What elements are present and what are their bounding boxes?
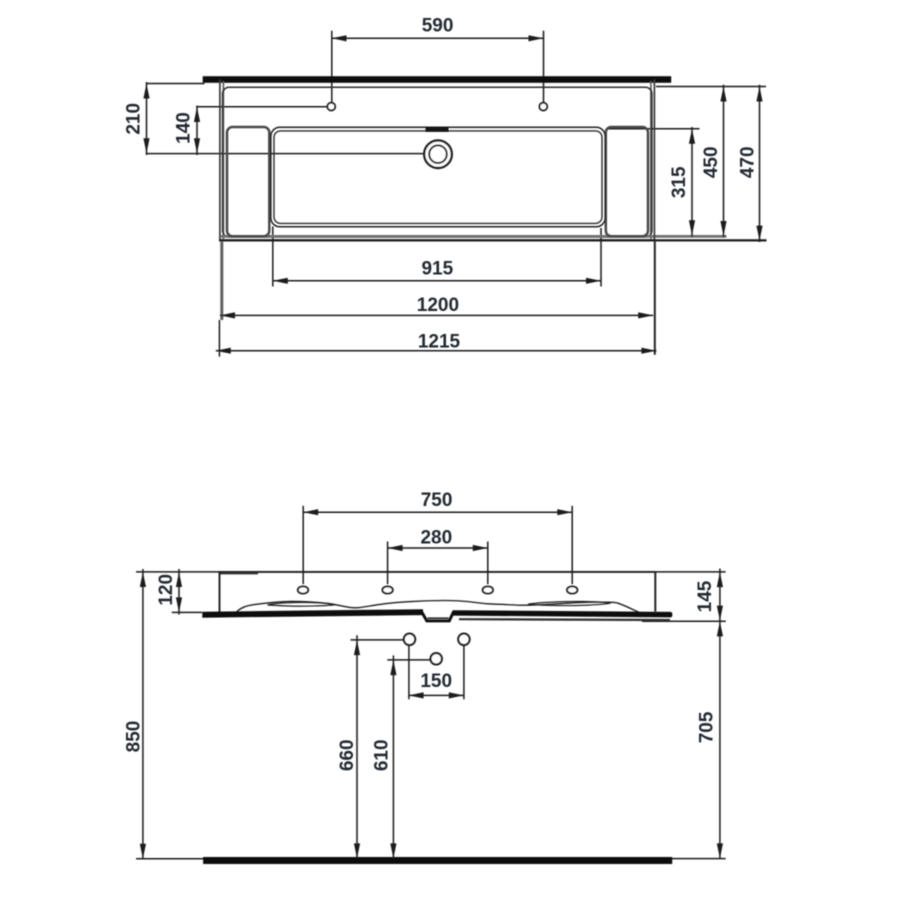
svg-text:150: 150 [420, 671, 452, 692]
svg-text:1215: 1215 [418, 331, 461, 352]
svg-text:315: 315 [669, 166, 690, 198]
svg-text:140: 140 [174, 112, 195, 144]
svg-text:470: 470 [738, 146, 759, 178]
svg-text:705: 705 [697, 711, 718, 743]
svg-text:450: 450 [701, 146, 722, 178]
svg-text:590: 590 [422, 16, 454, 37]
svg-text:750: 750 [421, 490, 453, 511]
svg-text:915: 915 [421, 258, 453, 279]
svg-text:1200: 1200 [417, 295, 459, 316]
svg-text:660: 660 [337, 739, 358, 771]
svg-text:120: 120 [156, 574, 177, 606]
svg-text:850: 850 [124, 721, 145, 753]
svg-text:610: 610 [371, 739, 392, 771]
svg-text:145: 145 [695, 580, 716, 612]
svg-text:210: 210 [124, 103, 145, 135]
svg-text:280: 280 [420, 527, 452, 548]
